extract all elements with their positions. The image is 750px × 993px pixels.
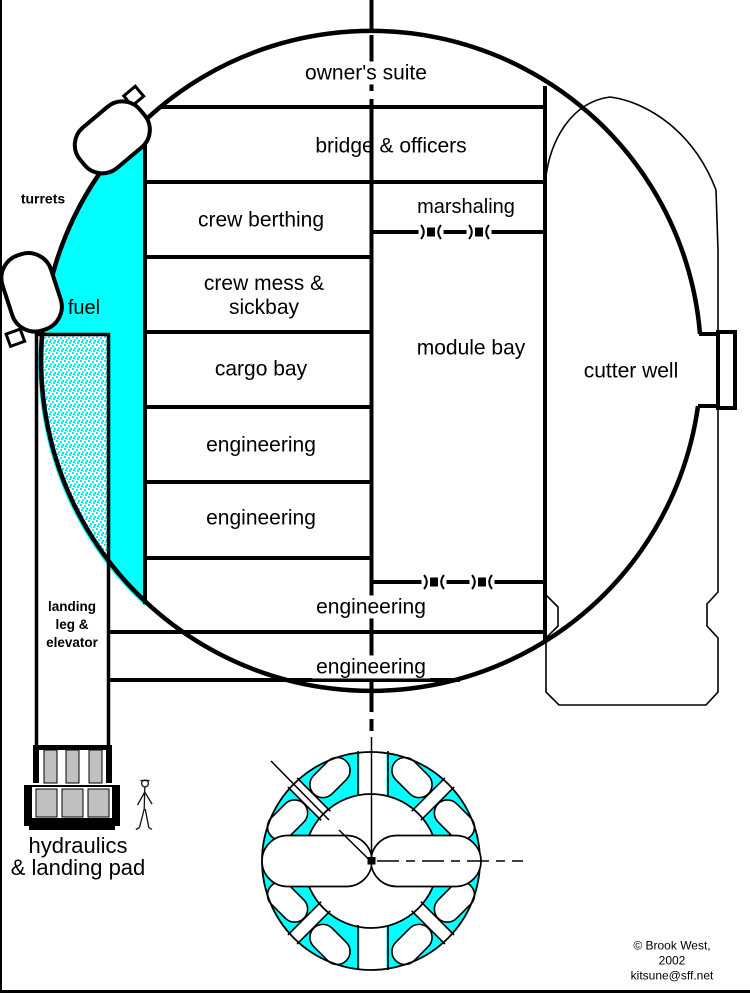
module-clamp-icon <box>467 224 492 240</box>
label-engineering-3: engineering <box>312 595 430 618</box>
label-fuel: fuel <box>68 297 100 319</box>
human-scale-figure <box>136 780 152 829</box>
label-landing-leg-line1: landing <box>46 598 98 616</box>
label-hydraulics-line2: & landing pad <box>11 857 146 879</box>
label-engineering-4: engineering <box>312 655 430 678</box>
deck-partition-lines <box>108 86 545 680</box>
label-landing-leg-line3: elevator <box>46 634 98 652</box>
cross-section-module-bay <box>262 836 372 887</box>
label-landing-leg-elevator: landing leg & elevator <box>46 598 98 652</box>
cutter-well-outline <box>546 97 718 705</box>
label-crew-mess-line1: crew mess & <box>204 272 324 296</box>
docking-collar <box>698 332 735 408</box>
fuel-tank-speckle <box>38 335 107 610</box>
credit-author: © Brook West, 2002 <box>631 939 714 969</box>
label-hydraulics-line1: hydraulics <box>11 835 146 857</box>
label-bridge-officers: bridge & officers <box>315 134 466 157</box>
cross-section <box>254 737 523 978</box>
label-turrets: turrets <box>21 191 65 206</box>
credit-block: © Brook West, 2002 kitsune@sff.net <box>631 939 714 984</box>
label-landing-leg-line2: leg & <box>46 616 98 634</box>
module-clamp-icon <box>470 574 495 590</box>
module-clamp-icon <box>422 574 447 590</box>
label-crew-berthing: crew berthing <box>198 208 324 231</box>
module-clamp-icon <box>419 224 444 240</box>
module-clamp-lines <box>371 224 545 590</box>
label-cargo-bay: cargo bay <box>215 357 307 380</box>
label-engineering-1: engineering <box>206 433 316 456</box>
label-engineering-2: engineering <box>206 506 316 529</box>
hydraulics-assembly <box>24 745 120 830</box>
label-module-bay: module bay <box>417 336 526 359</box>
label-crew-mess-line2: sickbay <box>204 296 324 320</box>
label-owners-suite: owner's suite <box>301 61 431 84</box>
deck-plan-diagram: owner's suite bridge & officers crew ber… <box>0 0 750 993</box>
label-cutter-well: cutter well <box>584 359 679 382</box>
label-marshaling: marshaling <box>417 196 515 218</box>
credit-email: kitsune@sff.net <box>631 969 714 984</box>
label-crew-mess-sickbay: crew mess & sickbay <box>204 272 324 320</box>
label-hydraulics-landing-pad: hydraulics & landing pad <box>11 835 146 879</box>
